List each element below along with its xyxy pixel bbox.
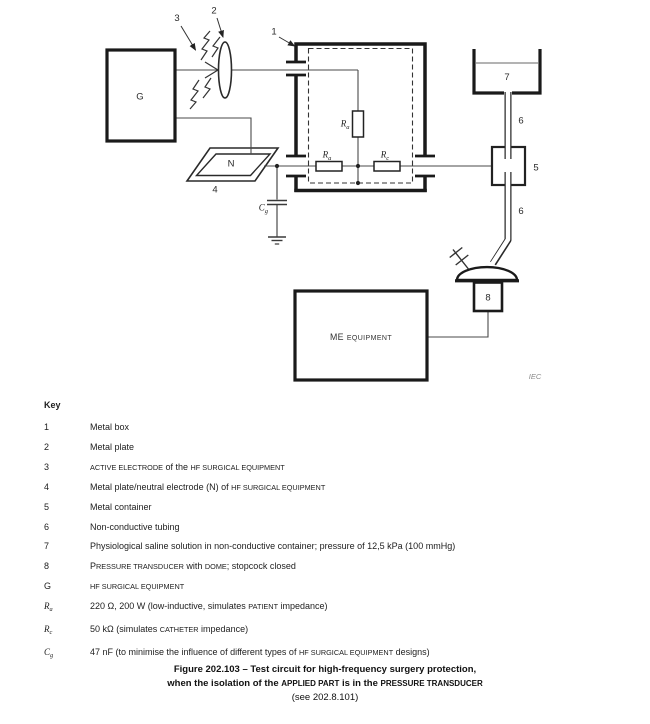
- key-description: ACTIVE ELECTRODE of the HF SURGICAL EQUI…: [90, 458, 624, 478]
- key-row: Ra 220 Ω, 200 W (low-inductive, simulate…: [44, 597, 624, 620]
- transducer-number: 8: [485, 293, 490, 304]
- key-description: Metal box: [90, 418, 624, 438]
- callout-5: 5: [533, 163, 538, 174]
- key-row: 3 ACTIVE ELECTRODE of the HF SURGICAL EQ…: [44, 458, 624, 478]
- key-heading: Key: [44, 400, 624, 410]
- key-description: 220 Ω, 200 W (low-inductive, simulates P…: [90, 597, 624, 620]
- key-row: 8 PRESSURE TRANSDUCER with DOME; stopcoc…: [44, 557, 624, 577]
- caption-line-1: Figure 202.103 – Test circuit for high-f…: [0, 663, 650, 677]
- key-section: Key 1 Metal box 2 Metal plate 3 ACTIVE E…: [44, 400, 624, 666]
- key-description: Metal container: [90, 498, 624, 518]
- key-rows: 1 Metal box 2 Metal plate 3 ACTIVE ELECT…: [44, 418, 624, 666]
- generator-label: G: [136, 92, 143, 103]
- ground-icon: [268, 237, 286, 244]
- key-row: Rc 50 kΩ (simulates CATHETER impedance): [44, 620, 624, 643]
- resistor-ra-vertical: Ra: [340, 111, 364, 137]
- svg-text:Ra: Ra: [322, 150, 332, 163]
- key-symbol: 4: [44, 478, 90, 498]
- resistor-rc: Rc: [374, 150, 400, 172]
- figure-caption: Figure 202.103 – Test circuit for high-f…: [0, 663, 650, 705]
- key-row: 2 Metal plate: [44, 438, 624, 458]
- key-symbol: 8: [44, 557, 90, 577]
- key-description: 50 kΩ (simulates CATHETER impedance): [90, 620, 624, 643]
- key-symbol: 5: [44, 498, 90, 518]
- key-symbol: 2: [44, 438, 90, 458]
- me-equipment-box: ME EQUIPMENT: [295, 291, 427, 380]
- key-description: HF SURGICAL EQUIPMENT: [90, 577, 624, 597]
- key-symbol: Ra: [44, 597, 90, 620]
- key-description: PRESSURE TRANSDUCER with DOME; stopcock …: [90, 557, 624, 577]
- svg-text:Ra: Ra: [340, 119, 350, 132]
- capacitor-cg: [267, 166, 287, 237]
- hf-generator-box: G: [107, 50, 175, 141]
- callout-4: 4: [212, 185, 217, 196]
- callout-6-lower: 6: [518, 206, 523, 217]
- key-description: Non-conductive tubing: [90, 518, 624, 538]
- key-row: G HF SURGICAL EQUIPMENT: [44, 577, 624, 597]
- svg-text:3: 3: [174, 13, 179, 24]
- neutral-plate-label: N: [228, 159, 235, 170]
- svg-text:1: 1: [271, 27, 276, 38]
- key-row: 1 Metal box: [44, 418, 624, 438]
- callout-6-upper: 6: [518, 116, 523, 127]
- callout-3: 3: [174, 13, 195, 50]
- callout-7: 7: [504, 72, 509, 83]
- svg-text:Rc: Rc: [380, 150, 390, 163]
- callout-2: 2: [211, 6, 223, 38]
- svg-text:2: 2: [211, 6, 216, 17]
- key-symbol: 1: [44, 418, 90, 438]
- pressure-transducer-dome: 8: [455, 267, 519, 311]
- key-description: Metal plate: [90, 438, 624, 458]
- key-description: Physiological saline solution in non-con…: [90, 537, 624, 557]
- caption-line-2: when the isolation of the APPLIED PART i…: [0, 677, 650, 691]
- caption-line-3: (see 202.8.101): [0, 691, 650, 705]
- key-row: 5 Metal container: [44, 498, 624, 518]
- metal-plate-electrode: [219, 42, 232, 98]
- iec-label: IEC: [529, 372, 542, 381]
- callout-1: 1: [271, 27, 294, 47]
- key-row: 6 Non-conductive tubing: [44, 518, 624, 538]
- key-symbol: 6: [44, 518, 90, 538]
- key-description: Metal plate/neutral electrode (N) of HF …: [90, 478, 624, 498]
- key-row: 4 Metal plate/neutral electrode (N) of H…: [44, 478, 624, 498]
- key-symbol: Rc: [44, 620, 90, 643]
- saline-container: [472, 49, 541, 93]
- key-symbol: G: [44, 577, 90, 597]
- resistor-ra-horizontal: Ra: [316, 150, 342, 172]
- key-symbol: 7: [44, 537, 90, 557]
- test-circuit-diagram: Cg G Ra Ra: [0, 0, 650, 395]
- key-symbol: 3: [44, 458, 90, 478]
- stopcock-closed-icon: [450, 248, 470, 272]
- key-row: 7 Physiological saline solution in non-c…: [44, 537, 624, 557]
